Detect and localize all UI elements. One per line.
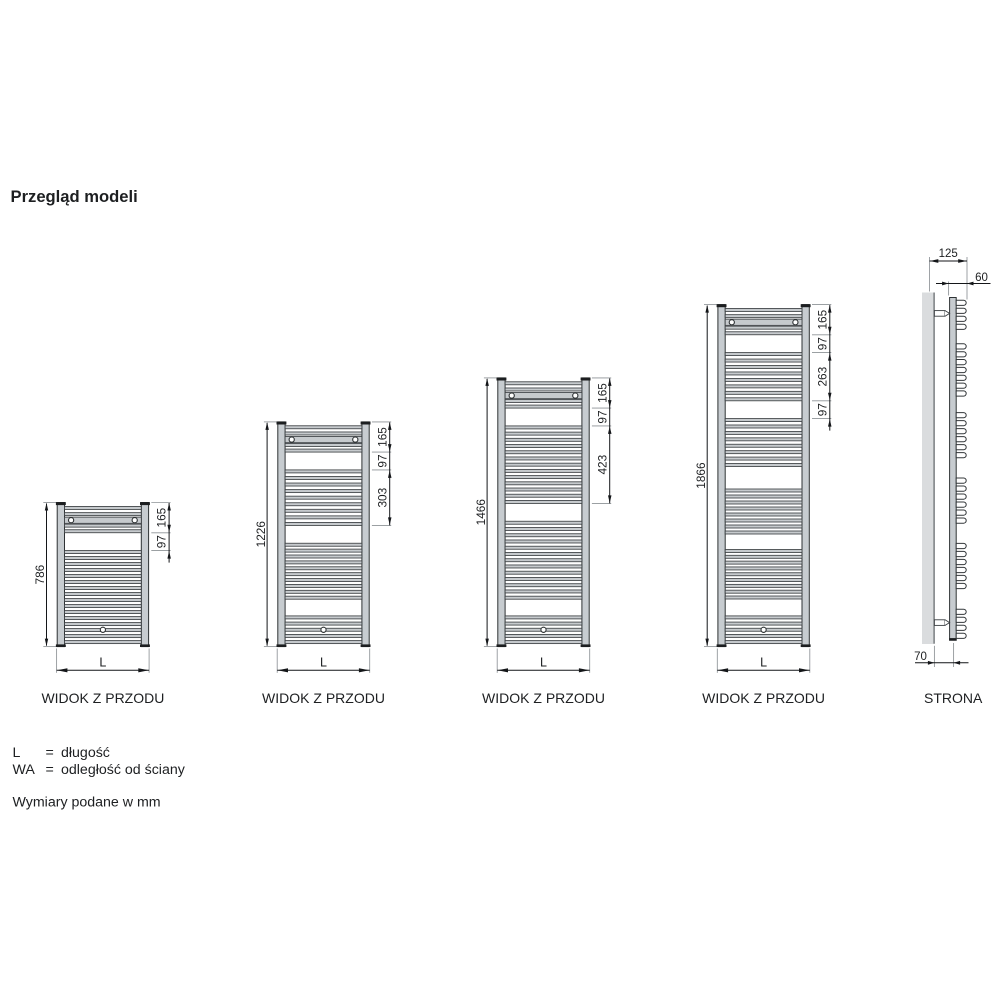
svg-text:STRONA: STRONA — [924, 690, 983, 706]
svg-text:60: 60 — [975, 272, 988, 284]
svg-text:97: 97 — [595, 410, 609, 423]
svg-text:165: 165 — [595, 383, 609, 403]
svg-text:165: 165 — [155, 507, 169, 527]
svg-text:1226: 1226 — [254, 521, 268, 548]
svg-text:97: 97 — [375, 454, 389, 467]
svg-text:długość: długość — [61, 745, 110, 761]
svg-text:1466: 1466 — [474, 499, 488, 526]
svg-text:303: 303 — [375, 487, 389, 507]
svg-text:odległość od ściany: odległość od ściany — [61, 762, 186, 778]
svg-text:70: 70 — [914, 651, 927, 663]
svg-text:L: L — [760, 655, 767, 669]
svg-text:=: = — [46, 762, 54, 778]
svg-text:786: 786 — [33, 564, 47, 584]
svg-text:L: L — [320, 655, 327, 669]
svg-text:125: 125 — [939, 248, 958, 260]
svg-text:165: 165 — [375, 427, 389, 447]
svg-text:423: 423 — [595, 454, 609, 474]
svg-text:165: 165 — [815, 309, 829, 329]
svg-text:=: = — [46, 745, 54, 761]
svg-text:263: 263 — [815, 366, 829, 386]
svg-text:97: 97 — [815, 337, 829, 350]
svg-text:WIDOK Z PRZODU: WIDOK Z PRZODU — [482, 690, 605, 706]
svg-text:L: L — [540, 655, 547, 669]
svg-text:Wymiary podane w mm: Wymiary podane w mm — [13, 795, 161, 811]
svg-text:L: L — [99, 655, 106, 669]
svg-text:Przegląd modeli: Przegląd modeli — [11, 187, 138, 206]
svg-text:WA: WA — [13, 762, 36, 778]
svg-text:97: 97 — [815, 403, 829, 416]
svg-text:WIDOK Z PRZODU: WIDOK Z PRZODU — [41, 690, 164, 706]
svg-text:WIDOK Z PRZODU: WIDOK Z PRZODU — [262, 690, 385, 706]
svg-text:L: L — [13, 745, 21, 761]
svg-text:1866: 1866 — [694, 462, 708, 489]
svg-text:97: 97 — [155, 535, 169, 548]
svg-text:WIDOK Z PRZODU: WIDOK Z PRZODU — [702, 690, 825, 706]
